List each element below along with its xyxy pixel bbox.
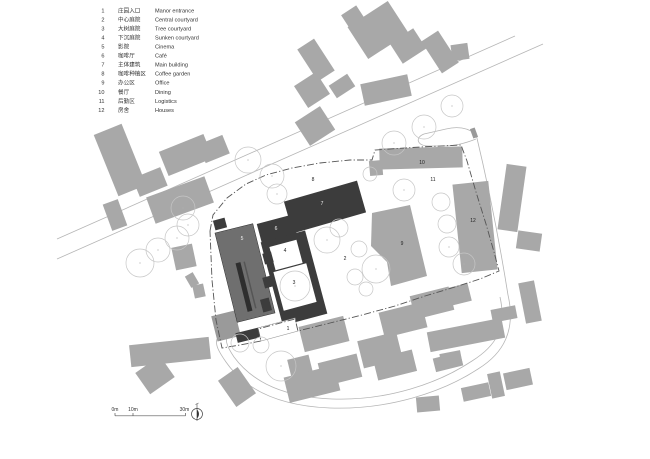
context-building [503, 368, 533, 390]
legend-label-en: Café [155, 54, 167, 60]
legend-label-en: Sunken courtyard [155, 35, 199, 41]
legend-label-zh: 房舍 [118, 106, 130, 114]
gate-tick [470, 127, 478, 138]
legend-label-zh: 影院 [118, 43, 130, 51]
legend-label-en: Manor entrance [155, 8, 194, 14]
loop-road-edge-3 [418, 128, 476, 146]
site-plan-page: 1234567891011121庄园入口Manor entrance2中心庭院C… [0, 0, 650, 459]
legend-number: 10 [98, 90, 104, 96]
legend-label-en: Office [155, 81, 170, 87]
plan-label-10: 10 [419, 160, 425, 166]
context-building [427, 318, 505, 352]
legend-label-zh: 餐厅 [118, 88, 130, 96]
tree-center-dot [280, 365, 281, 366]
legend-item: 11后勤区Logistics [99, 97, 177, 105]
legend-number: 6 [101, 54, 104, 60]
tree-center-dot [451, 105, 452, 106]
legend-number: 12 [98, 108, 104, 114]
legend-number: 2 [101, 17, 104, 23]
legend-item: 8咖啡种植区Coffee garden [101, 70, 190, 78]
legend-label-zh: 大树庭院 [118, 24, 141, 32]
plan-label-6: 6 [275, 226, 278, 232]
legend-label-zh: 庄园入口 [118, 6, 140, 14]
tree-center-dot [157, 249, 158, 250]
legend-label-en: Central courtyard [155, 17, 198, 23]
tree-center-dot [403, 189, 404, 190]
tree-center-dot [463, 263, 464, 264]
tree-center-dot [448, 246, 449, 247]
context-building [442, 283, 472, 307]
legend-label-en: Tree courtyard [155, 26, 191, 32]
tree-center-dot [276, 193, 277, 194]
context-building [218, 367, 256, 407]
plan-label-5: 5 [241, 236, 244, 242]
north-arrow-icon [192, 403, 203, 421]
cinema-stair-core [213, 218, 227, 231]
context-building [294, 72, 330, 108]
legend-label-zh: 咖啡种植区 [118, 70, 146, 78]
legend-label-en: Logistics [155, 99, 177, 105]
tree-center-dot [139, 262, 140, 263]
plan-label-4: 4 [284, 248, 287, 254]
legend-number: 4 [101, 35, 104, 41]
houses-building-12 [452, 181, 497, 273]
dining-building-10 [379, 146, 463, 169]
context-building [103, 199, 128, 231]
site-plan-drawing: 1234567891011121庄园入口Manor entrance2中心庭院C… [0, 0, 650, 459]
legend-item: 3大树庭院Tree courtyard [101, 24, 191, 32]
tree-center-dot [393, 142, 394, 143]
scale-label: 0m [112, 407, 119, 413]
tree [351, 241, 367, 257]
legend-label-zh: 办公区 [118, 79, 135, 87]
tree-center-dot [187, 224, 188, 225]
tree-center-dot [375, 268, 376, 269]
context-building [329, 74, 356, 99]
context-building [192, 283, 205, 298]
plan-label-11: 11 [430, 177, 435, 183]
context-building [360, 74, 412, 105]
dining-annex [369, 160, 383, 176]
legend-item: 4下沉庭院Sunken courtyard [101, 33, 198, 41]
legend-number: 1 [101, 8, 104, 14]
main-building-7 [284, 181, 366, 234]
plan-label-8: 8 [312, 177, 315, 183]
tree [347, 269, 363, 285]
plan-label-1: 1 [287, 326, 290, 332]
context-building [416, 396, 440, 413]
legend-label-zh: 咖啡厅 [118, 52, 135, 60]
legend-label-en: Houses [155, 108, 174, 114]
legend-label-zh: 主体建筑 [118, 61, 141, 69]
legend-label-zh: 后勤区 [118, 97, 135, 105]
legend-label-en: Cinema [155, 45, 175, 51]
context-building [299, 316, 350, 352]
tree-center-dot [271, 175, 272, 176]
context-building [129, 337, 211, 367]
tree [432, 193, 450, 211]
legend-number: 11 [99, 99, 105, 105]
context-building [498, 164, 527, 232]
legend-item: 6咖啡厅Café [101, 52, 166, 60]
context-building [318, 354, 363, 387]
context-building [295, 106, 335, 146]
legend-number: 8 [101, 72, 104, 78]
context-building [461, 382, 491, 402]
legend-item: 1庄园入口Manor entrance [101, 6, 194, 14]
tree-center-dot [326, 239, 327, 240]
legend-item: 9办公区Office [101, 79, 169, 87]
tree-center-dot [247, 159, 248, 160]
plan-label-12: 12 [470, 218, 476, 224]
tree-center-dot [423, 126, 424, 127]
context-building [490, 305, 517, 323]
plan-label-9: 9 [401, 241, 404, 247]
scale-label: 30m [180, 407, 190, 413]
legend-label-zh: 下沉庭院 [118, 33, 141, 41]
legend-item: 12房舍Houses [98, 106, 174, 114]
legend-number: 7 [101, 63, 104, 69]
legend-item: 7主体建筑Main building [101, 61, 188, 69]
scale-bar: 0m10m30m [112, 407, 190, 416]
legend-label-en: Coffee garden [155, 72, 190, 78]
north-arrow-lens [197, 410, 199, 419]
legend-label-en: Main building [155, 63, 188, 69]
office-building-9 [371, 205, 427, 286]
plan-label-7: 7 [321, 201, 324, 207]
context-building [450, 43, 469, 61]
legend-number: 9 [101, 81, 104, 87]
tree [438, 215, 456, 233]
plan-label-3: 3 [293, 280, 296, 286]
legend-label-zh: 中心庭院 [118, 15, 141, 23]
legend-number: 3 [101, 26, 104, 32]
legend-number: 5 [101, 45, 104, 51]
context-building [518, 280, 542, 323]
scale-label: 10m [128, 407, 138, 413]
tree-center-dot [176, 237, 177, 238]
plan-label-2: 2 [344, 256, 347, 262]
legend-item: 2中心庭院Central courtyard [101, 15, 198, 23]
legend-item: 5影院Cinema [101, 43, 175, 51]
tree-center-dot [182, 207, 183, 208]
tree [359, 282, 373, 296]
context-building [516, 230, 542, 251]
legend-item: 10餐厅Dining [98, 88, 171, 96]
legend-label-en: Dining [155, 90, 171, 96]
legend: 1庄园入口Manor entrance2中心庭院Central courtyar… [98, 6, 199, 114]
